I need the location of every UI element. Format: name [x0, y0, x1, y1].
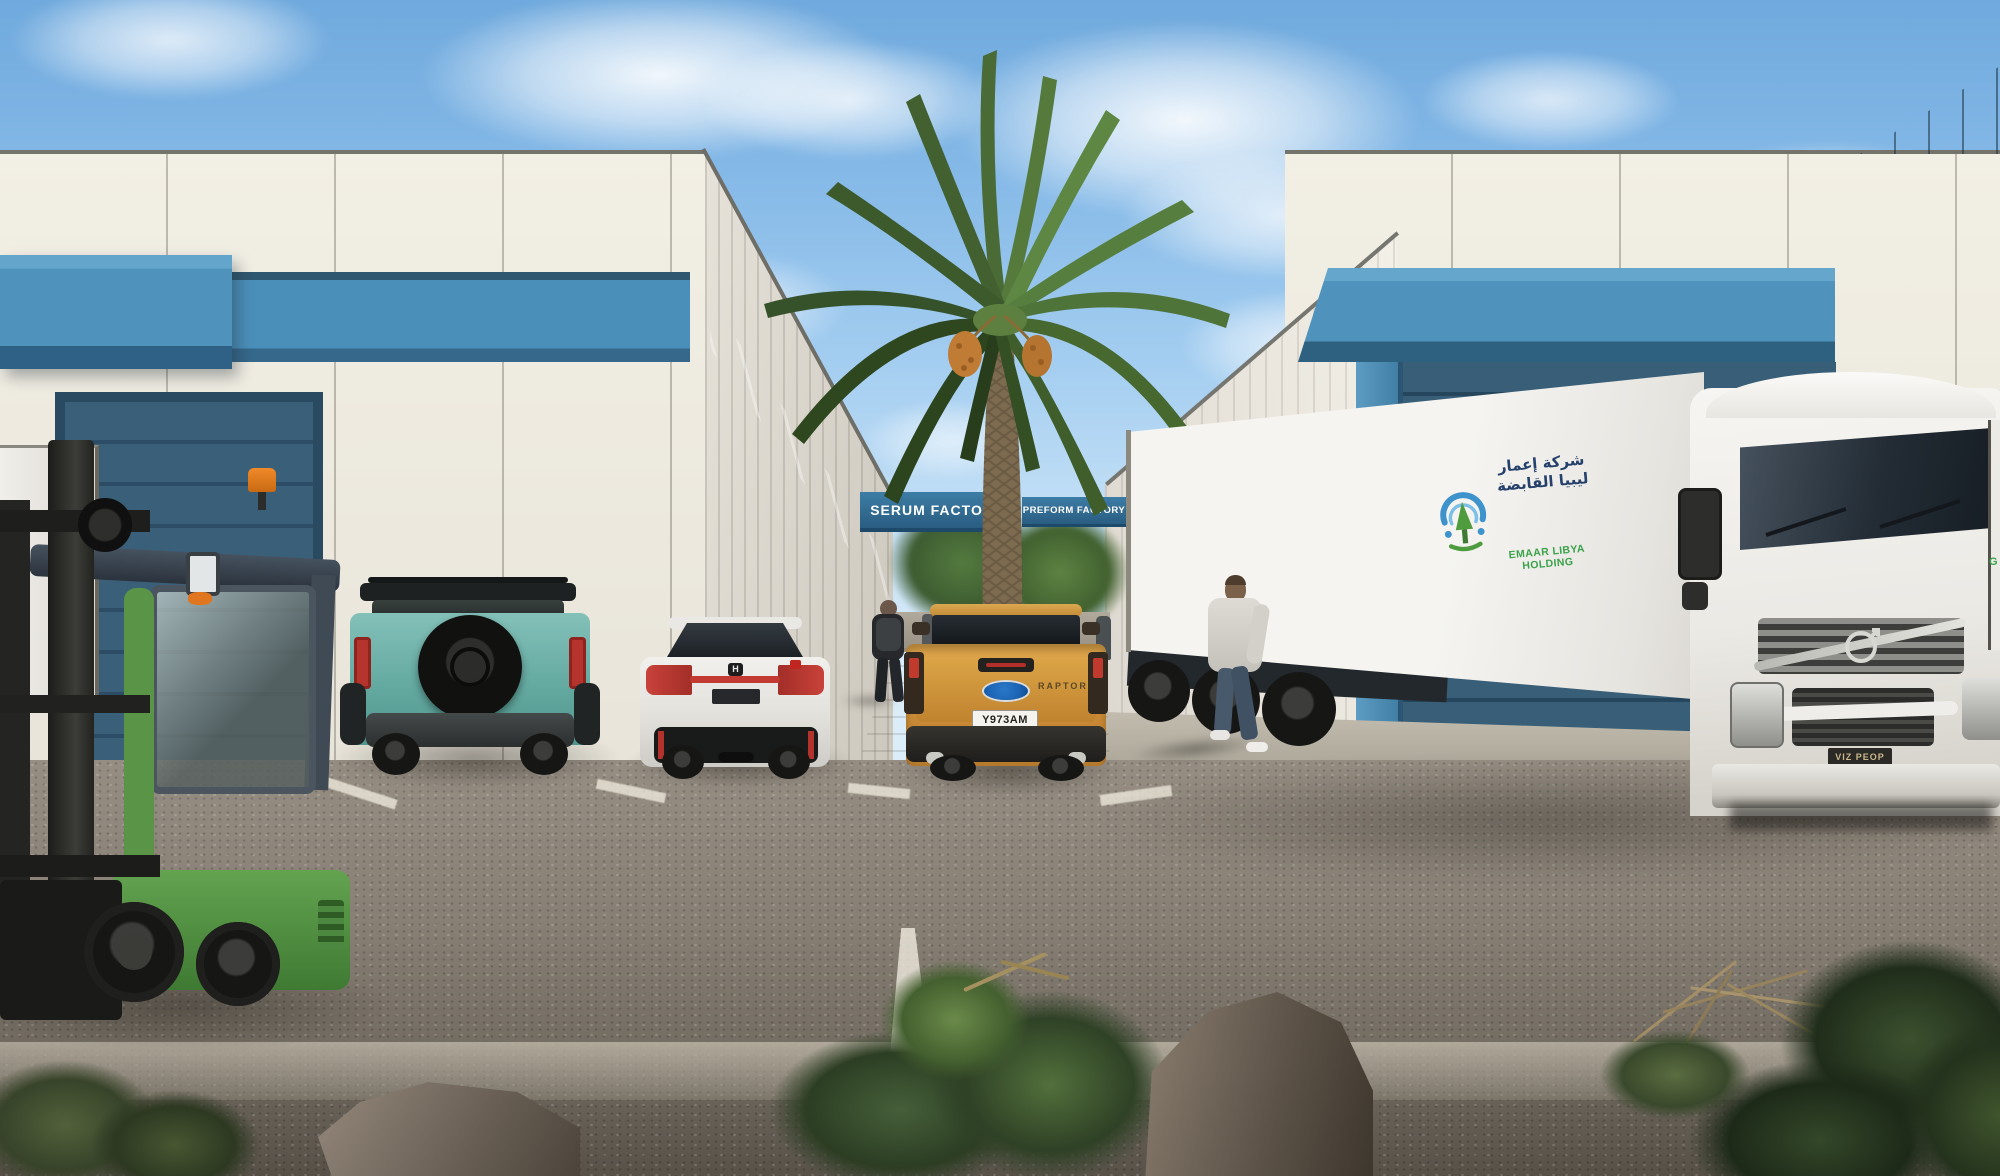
left-building-blue-band-recessed: [228, 272, 690, 362]
left-building-blue-canopy: [0, 255, 232, 369]
mast-pulley: [78, 498, 132, 552]
cloud: [1420, 50, 1680, 150]
honda-h-badge: H: [728, 663, 743, 676]
tailgate-brake-light: [986, 663, 1026, 667]
trailer-logo-arabic: شركة إعمار ليبيا القابضة: [1482, 449, 1603, 497]
forklift-mirror: [186, 552, 220, 596]
civic-taillight-left: [646, 665, 692, 695]
front-bumper: [1712, 764, 2000, 808]
pickup-mirror-right: [1082, 622, 1100, 635]
front-plate: VIZ PEOP: [1828, 748, 1892, 765]
fender-flare-left: [340, 683, 366, 745]
architectural-rendering: SERUM FACTORY PREFORM FACTORY: [0, 0, 2000, 1176]
pickup-wheel: [1038, 755, 1084, 781]
semi-plate-text: VIZ PEOP: [1835, 752, 1885, 762]
pickup-wheel: [930, 755, 976, 781]
shoe: [1246, 742, 1268, 752]
forklift-counterweight-vents: [318, 900, 344, 948]
trailer-logo-company: EMAAR LIBYA HOLDING: [1484, 541, 1612, 576]
neighbor-trailer-sliver: [1988, 420, 2000, 650]
forklift-indicator: [188, 592, 212, 605]
bronco-wheel: [520, 733, 568, 775]
trailer-wheel: [1262, 672, 1336, 746]
civic-wheel: [662, 745, 704, 779]
civic-plate: [712, 689, 760, 704]
shoe: [1210, 730, 1230, 740]
forklift-cab-glass: [150, 585, 316, 794]
side-mirror: [1678, 488, 1722, 580]
backpack: [876, 618, 901, 651]
honda-h-letter: H: [732, 665, 739, 674]
emaar-libya-holding-logo-icon: [1434, 481, 1492, 557]
forklift-wheel: [196, 922, 280, 1006]
mast-crossbar: [0, 855, 160, 877]
bronco-wheel: [372, 733, 420, 775]
civic-exhaust: [718, 752, 754, 762]
spare-tire-hub: [450, 647, 490, 687]
beacon-light: [248, 468, 276, 492]
civic-taillight-right: [778, 665, 824, 695]
civic-wheel: [768, 745, 810, 779]
ford-oval-badge: [984, 682, 1028, 700]
pickup-taillight-left-lens: [909, 658, 919, 678]
volvo-logo-icon: [1842, 628, 1880, 666]
headlight-left: [1730, 682, 1784, 748]
si-badge: [790, 660, 801, 669]
pickup-mirror-left: [912, 622, 930, 635]
trailer-rear-edge: [1126, 430, 1131, 652]
mast-crossbar: [0, 695, 150, 713]
neighbor-trailer-logo-fragment: G: [1989, 556, 1998, 568]
trailer-wheel: [1128, 660, 1190, 722]
bronco-roof: [360, 583, 576, 601]
pickup-taillight-right-lens: [1093, 658, 1103, 678]
pickup-plate-text: Y973AM: [982, 714, 1028, 726]
civic-diffuser-accent: [808, 731, 814, 759]
headlight-right: [1962, 678, 2000, 740]
forklift-wheel-hub: [116, 934, 152, 970]
raptor-badge: RAPTOR: [1038, 681, 1088, 691]
cab-underside-shadow: [1730, 804, 1992, 830]
lower-mirror: [1682, 582, 1708, 610]
trailer-logo-block: شركة إعمار ليبيا القابضة EMAAR LIBYA HOL…: [1431, 445, 1614, 619]
bronco-taillight-right: [569, 637, 586, 689]
right-building-blue-canopy: [1290, 268, 1835, 362]
civic-lightbar: [690, 676, 780, 683]
bronco-taillight-left: [354, 637, 371, 689]
fender-flare-right: [574, 683, 600, 745]
beacon-stem: [258, 492, 266, 510]
